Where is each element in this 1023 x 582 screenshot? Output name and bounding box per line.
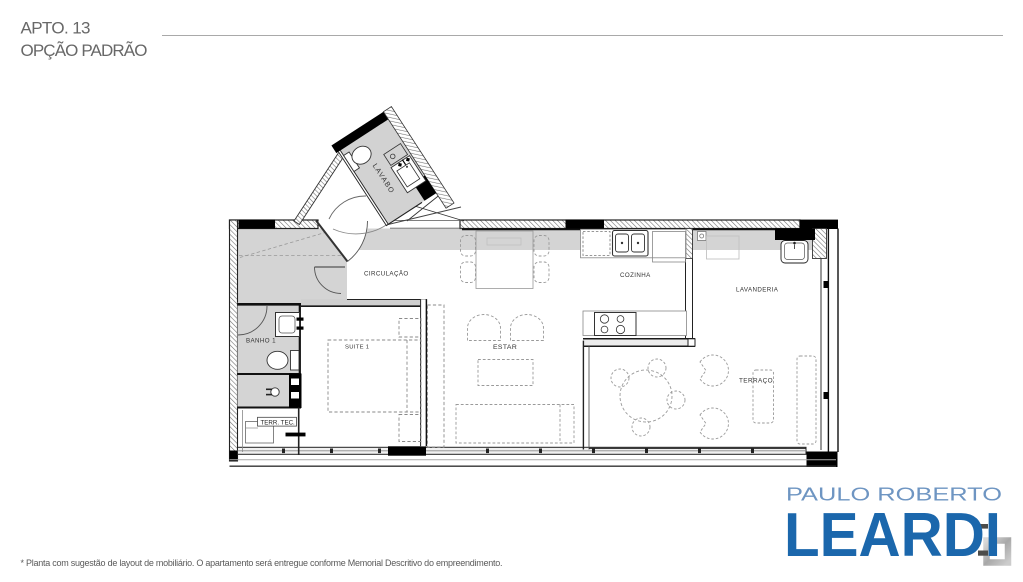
svg-text:COZINHA: COZINHA	[620, 272, 651, 279]
svg-text:OPÇÃO PADRÃO: OPÇÃO PADRÃO	[21, 41, 148, 60]
svg-text:SUITE 1: SUITE 1	[345, 344, 369, 350]
svg-text:ESTAR: ESTAR	[493, 344, 517, 351]
svg-text:LAVANDERIA: LAVANDERIA	[736, 287, 779, 294]
svg-text:CIRCULAÇÃO: CIRCULAÇÃO	[364, 271, 409, 278]
svg-text:* Planta com sugestão de layou: * Planta com sugestão de layout de mobil…	[21, 558, 503, 568]
svg-text:BANHO 1: BANHO 1	[246, 337, 276, 344]
svg-text:APTO. 13: APTO. 13	[21, 19, 91, 38]
svg-text:TERRAÇO: TERRAÇO	[739, 378, 773, 385]
svg-text:TERR. TEC.: TERR. TEC.	[261, 419, 296, 426]
svg-text:LEARDI: LEARDI	[784, 501, 1001, 570]
